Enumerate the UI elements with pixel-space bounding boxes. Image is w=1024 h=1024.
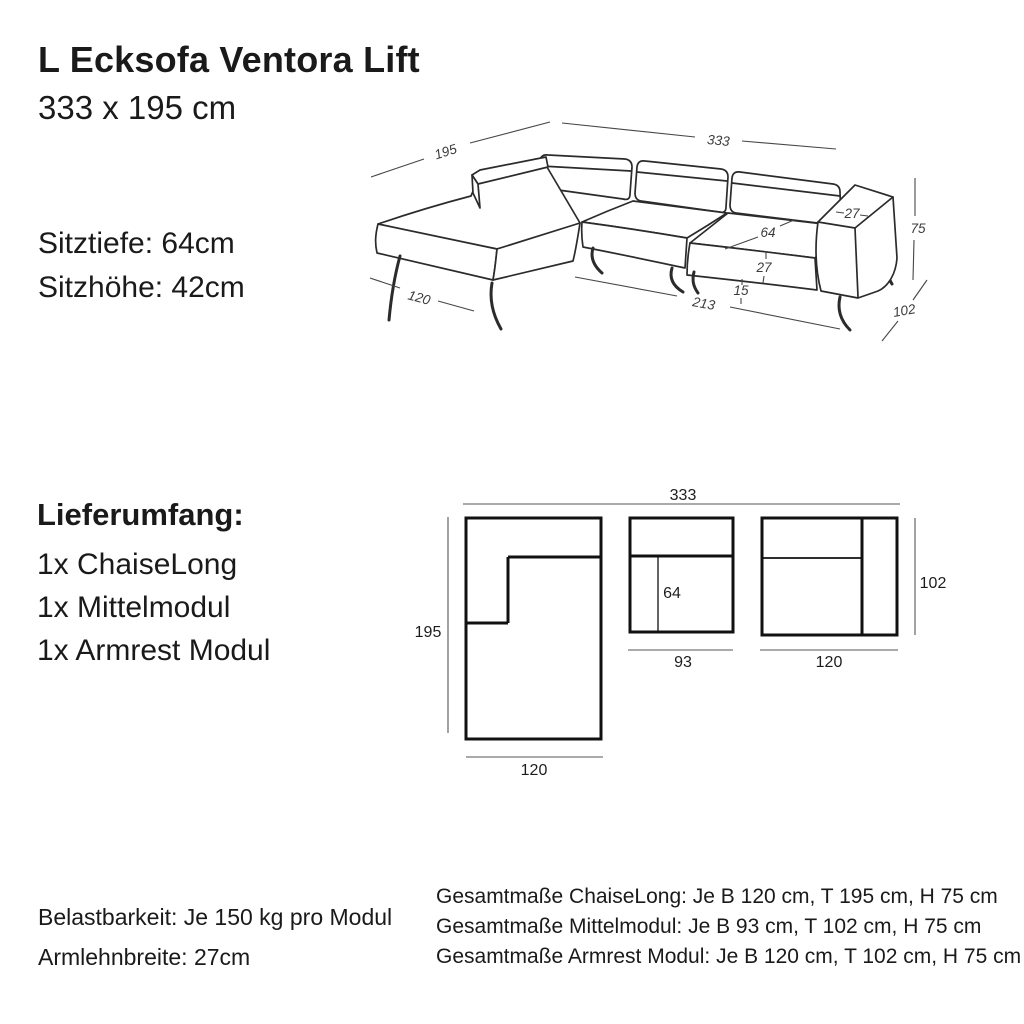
dim-total-depth: 195 <box>433 141 460 162</box>
dim-armrest-top-width: 27 <box>843 206 860 221</box>
dim-seat-depth: 64 <box>760 225 775 240</box>
dim-cushion-height: 27 <box>755 260 772 275</box>
module-mittelmodul <box>630 518 733 632</box>
sofa-isometric-drawing: 195 333 120 213 64 27 27 15 75 102 <box>370 110 960 350</box>
module-dim-total-width: 333 <box>670 487 697 504</box>
armrest-width-text: Armlehnbreite: 27cm <box>38 937 392 977</box>
overall-dims-armrest: Gesamtmaße Armrest Modul: Je B 120 cm, T… <box>436 942 1021 972</box>
overall-dims-mittelmodul: Gesamtmaße Mittelmodul: Je B 93 cm, T 10… <box>436 912 1021 942</box>
dim-side-depth: 102 <box>892 301 917 320</box>
notes-right: Gesamtmaße ChaiseLong: Je B 120 cm, T 19… <box>436 882 1021 972</box>
delivery-heading: Lieferumfang: <box>37 495 270 535</box>
module-outlines <box>466 518 897 739</box>
module-dim-armrest-width: 120 <box>816 654 843 671</box>
module-dim-middle-seat-depth: 64 <box>663 585 681 602</box>
module-topview-diagram: 333 195 120 64 93 102 120 <box>400 485 960 785</box>
dim-total-width: 333 <box>707 132 731 149</box>
page-subtitle: 333 x 195 cm <box>38 88 236 128</box>
delivery-item-armrest: 1x Armrest Modul <box>37 629 270 672</box>
seat-depth-text: Sitztiefe: 64cm <box>38 222 245 266</box>
notes-left: Belastbarkeit: Je 150 kg pro Modul Armle… <box>38 897 392 977</box>
module-chaiselong <box>466 518 601 739</box>
page-title: L Ecksofa Ventora Lift <box>38 38 420 82</box>
dim-seat-span: 213 <box>690 294 716 313</box>
load-capacity-text: Belastbarkeit: Je 150 kg pro Modul <box>38 897 392 937</box>
module-armrest <box>762 518 897 635</box>
spec-sheet: L Ecksofa Ventora Lift 333 x 195 cm Sitz… <box>0 0 1024 1024</box>
dim-chaise-width: 120 <box>406 287 432 307</box>
dim-base-height: 15 <box>733 283 749 298</box>
delivery-item-mittelmodul: 1x Mittelmodul <box>37 586 270 629</box>
module-dim-middle-width: 93 <box>674 654 692 671</box>
dim-total-height: 75 <box>910 221 926 236</box>
seat-height-text: Sitzhöhe: 42cm <box>38 266 245 310</box>
sofa-outline <box>376 155 897 330</box>
overall-dims-chaiselong: Gesamtmaße ChaiseLong: Je B 120 cm, T 19… <box>436 882 1021 912</box>
module-dim-armrest-depth: 102 <box>920 575 947 592</box>
module-dim-chaise-depth: 195 <box>415 624 442 641</box>
delivery-section: Lieferumfang: 1x ChaiseLong 1x Mittelmod… <box>37 495 270 672</box>
seat-specs: Sitztiefe: 64cm Sitzhöhe: 42cm <box>38 222 245 310</box>
module-dim-chaise-width: 120 <box>521 762 548 779</box>
delivery-item-chaiselong: 1x ChaiseLong <box>37 543 270 586</box>
